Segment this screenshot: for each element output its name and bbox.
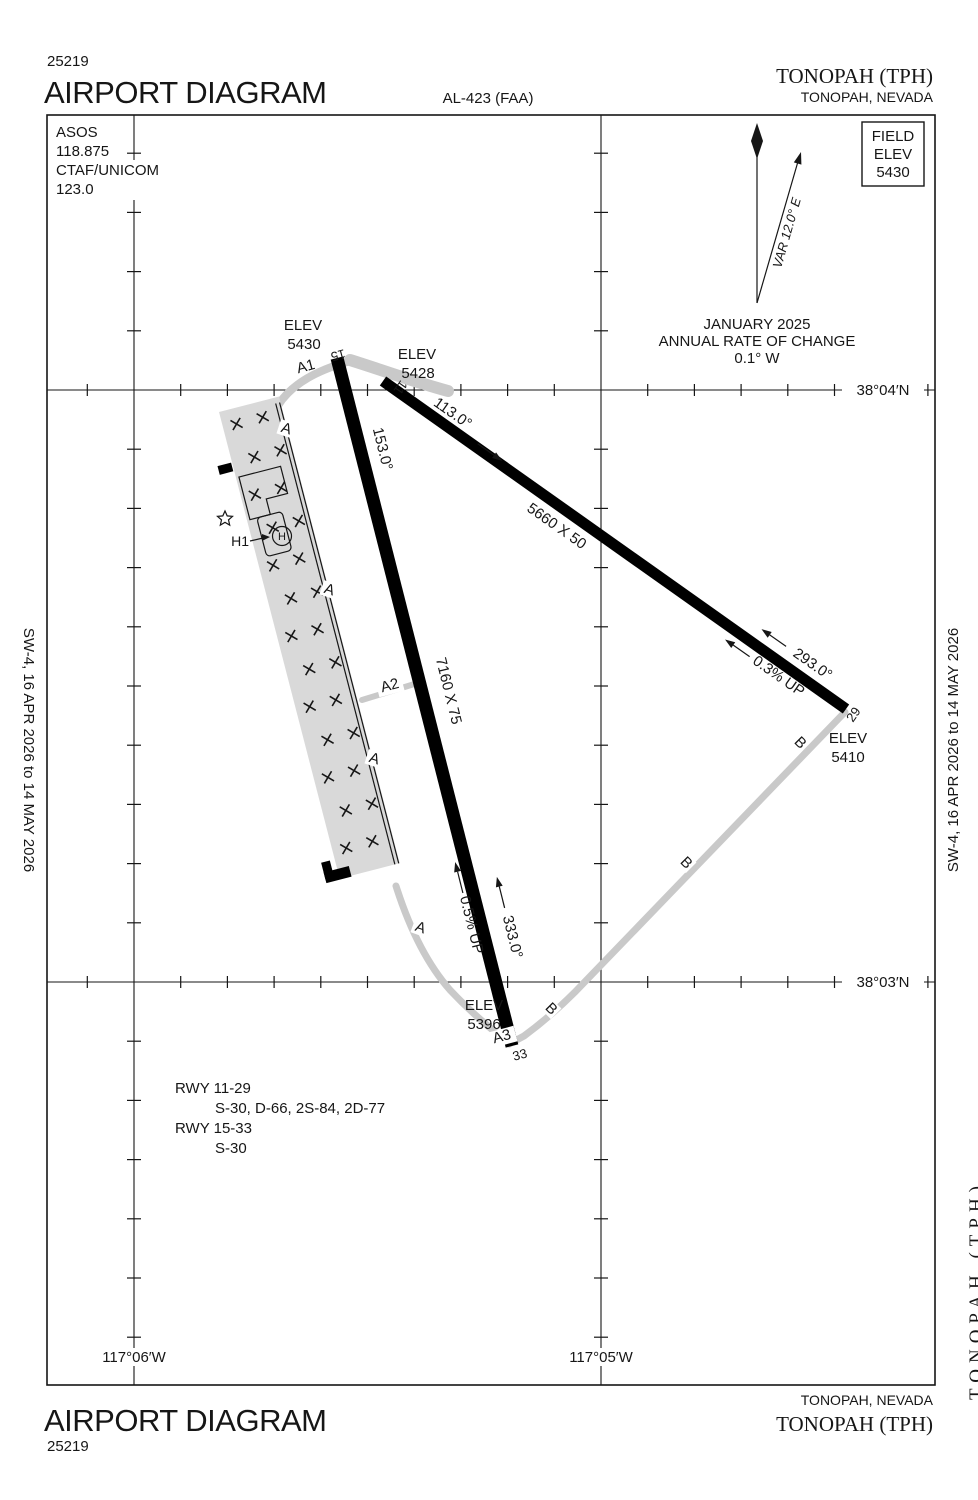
magnetic-north-arrow-icon <box>794 152 802 165</box>
comm-line-2: 118.875 <box>56 143 109 160</box>
heading-33: 333.0° <box>499 914 526 960</box>
h1-label: H1 <box>231 533 249 549</box>
comm-line-4: 123.0 <box>56 181 94 198</box>
runway-data-line-2: S-30, D-66, 2S-84, 2D-77 <box>215 1100 385 1117</box>
runway-number-33: 33 <box>511 1046 529 1064</box>
comm-line-1: ASOS <box>56 124 98 141</box>
runway-labels: 15 33 11 29 153.0° 7160 X 75 333.0° 0.5%… <box>284 317 867 1064</box>
city-state-bottom: TONOPAH, NEVADA <box>801 1392 934 1408</box>
city-state-top: TONOPAH, NEVADA <box>801 89 934 105</box>
heading-29-arrow-icon <box>759 626 771 637</box>
heading-15: 153.0° <box>369 426 396 472</box>
runway-data-line-3: RWY 15-33 <box>175 1120 252 1137</box>
airport-name-top: TONOPAH (TPH) <box>776 64 933 88</box>
lon-right-label: 117°05′W <box>569 1349 633 1366</box>
building-block-west <box>217 463 233 475</box>
heading-33-arrow-icon <box>493 876 502 887</box>
page-title-top: AIRPORT DIAGRAM <box>44 75 326 110</box>
airport-diagram-svg: 25219 AIRPORT DIAGRAM AL-423 (FAA) TONOP… <box>0 0 978 1500</box>
elev-15-value: 5430 <box>287 336 320 353</box>
page-title-bottom: AIRPORT DIAGRAM <box>44 1403 326 1438</box>
elev-15-word: ELEV <box>284 317 322 334</box>
al-number: AL-423 (FAA) <box>443 90 534 107</box>
elev-11-word: ELEV <box>398 346 436 363</box>
apron-pavement <box>219 396 400 878</box>
beacon-icon <box>218 511 233 525</box>
comm-box: ASOS 118.875 CTAF/UNICOM 123.0 <box>50 124 172 200</box>
taxiway-b-segment <box>509 712 845 1044</box>
airport-diagram-page: { "colors": { "runway": "#000000", "taxi… <box>0 0 978 1500</box>
lat-top-label: 38°04′N <box>856 382 909 399</box>
field-elev-box: FIELD ELEV 5430 <box>862 122 924 186</box>
field-elev-value: 5430 <box>876 164 909 181</box>
elev-29-word: ELEV <box>829 730 867 747</box>
elev-33-word: ELEV <box>465 997 503 1014</box>
helipad-h: H <box>278 531 286 543</box>
airport-name-bottom: TONOPAH (TPH) <box>776 1412 933 1436</box>
grid-coordinate-labels: 38°04′N 38°03′N 117°06′W 117°05′W <box>92 381 924 1366</box>
north-arrow: VAR 12.0° E JANUARY 2025 ANNUAL RATE OF … <box>659 123 856 367</box>
header: 25219 AIRPORT DIAGRAM AL-423 (FAA) TONOP… <box>44 53 934 110</box>
elev-29: ELEV 5410 <box>829 730 867 766</box>
footer: AIRPORT DIAGRAM 25219 TONOPAH, NEVADA TO… <box>44 1392 934 1455</box>
variation-label: VAR 12.0° E <box>769 196 803 270</box>
heading-11-group: 113.0° <box>427 394 513 464</box>
chart-number-bottom: 25219 <box>47 1438 89 1455</box>
variation-date: JANUARY 2025 <box>703 316 810 333</box>
edge-text-clipped: TONOPAH (TPH) <box>966 1180 978 1400</box>
runway-data-block: RWY 11-29 S-30, D-66, 2S-84, 2D-77 RWY 1… <box>175 1080 385 1157</box>
chart-number-top: 25219 <box>47 53 89 70</box>
dimensions-15-33: 7160 X 75 <box>432 656 465 726</box>
runways <box>337 358 846 1046</box>
slope-11-29-arrow-icon <box>723 637 735 648</box>
side-text-left: SW-4, 16 APR 2026 to 14 MAY 2026 <box>20 628 37 872</box>
elev-29-value: 5410 <box>831 749 864 766</box>
heading-33-group: 333.0° <box>489 875 526 960</box>
elev-11: ELEV 5428 <box>398 346 436 382</box>
field-elev-word-2: ELEV <box>874 146 912 163</box>
elev-15: ELEV 5430 <box>284 317 322 353</box>
variation-rate-2: 0.1° W <box>734 350 780 367</box>
true-north-arrow-icon <box>751 123 763 159</box>
runway-data-line-1: RWY 11-29 <box>175 1080 251 1097</box>
lat-bottom-label: 38°03′N <box>856 974 909 991</box>
runway-11-29 <box>383 381 846 709</box>
comm-line-3: CTAF/UNICOM <box>56 162 159 179</box>
field-elev-word-1: FIELD <box>872 128 915 145</box>
elev-11-value: 5428 <box>401 365 434 382</box>
variation-rate-1: ANNUAL RATE OF CHANGE <box>659 333 856 350</box>
runway-data-line-4: S-30 <box>215 1140 247 1157</box>
lon-left-label: 117°06′W <box>102 1349 166 1366</box>
side-text-right: SW-4, 16 APR 2026 to 14 MAY 2026 <box>945 628 962 872</box>
